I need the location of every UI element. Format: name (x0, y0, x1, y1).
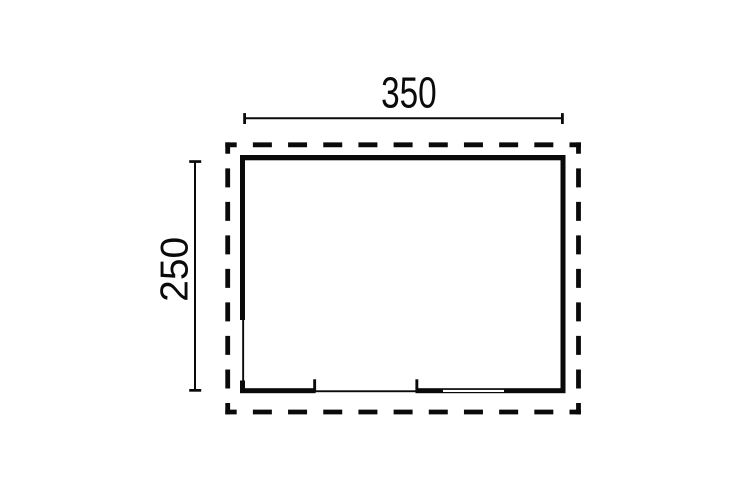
svg-text:350: 350 (381, 69, 437, 117)
svg-text:250: 250 (153, 237, 196, 302)
